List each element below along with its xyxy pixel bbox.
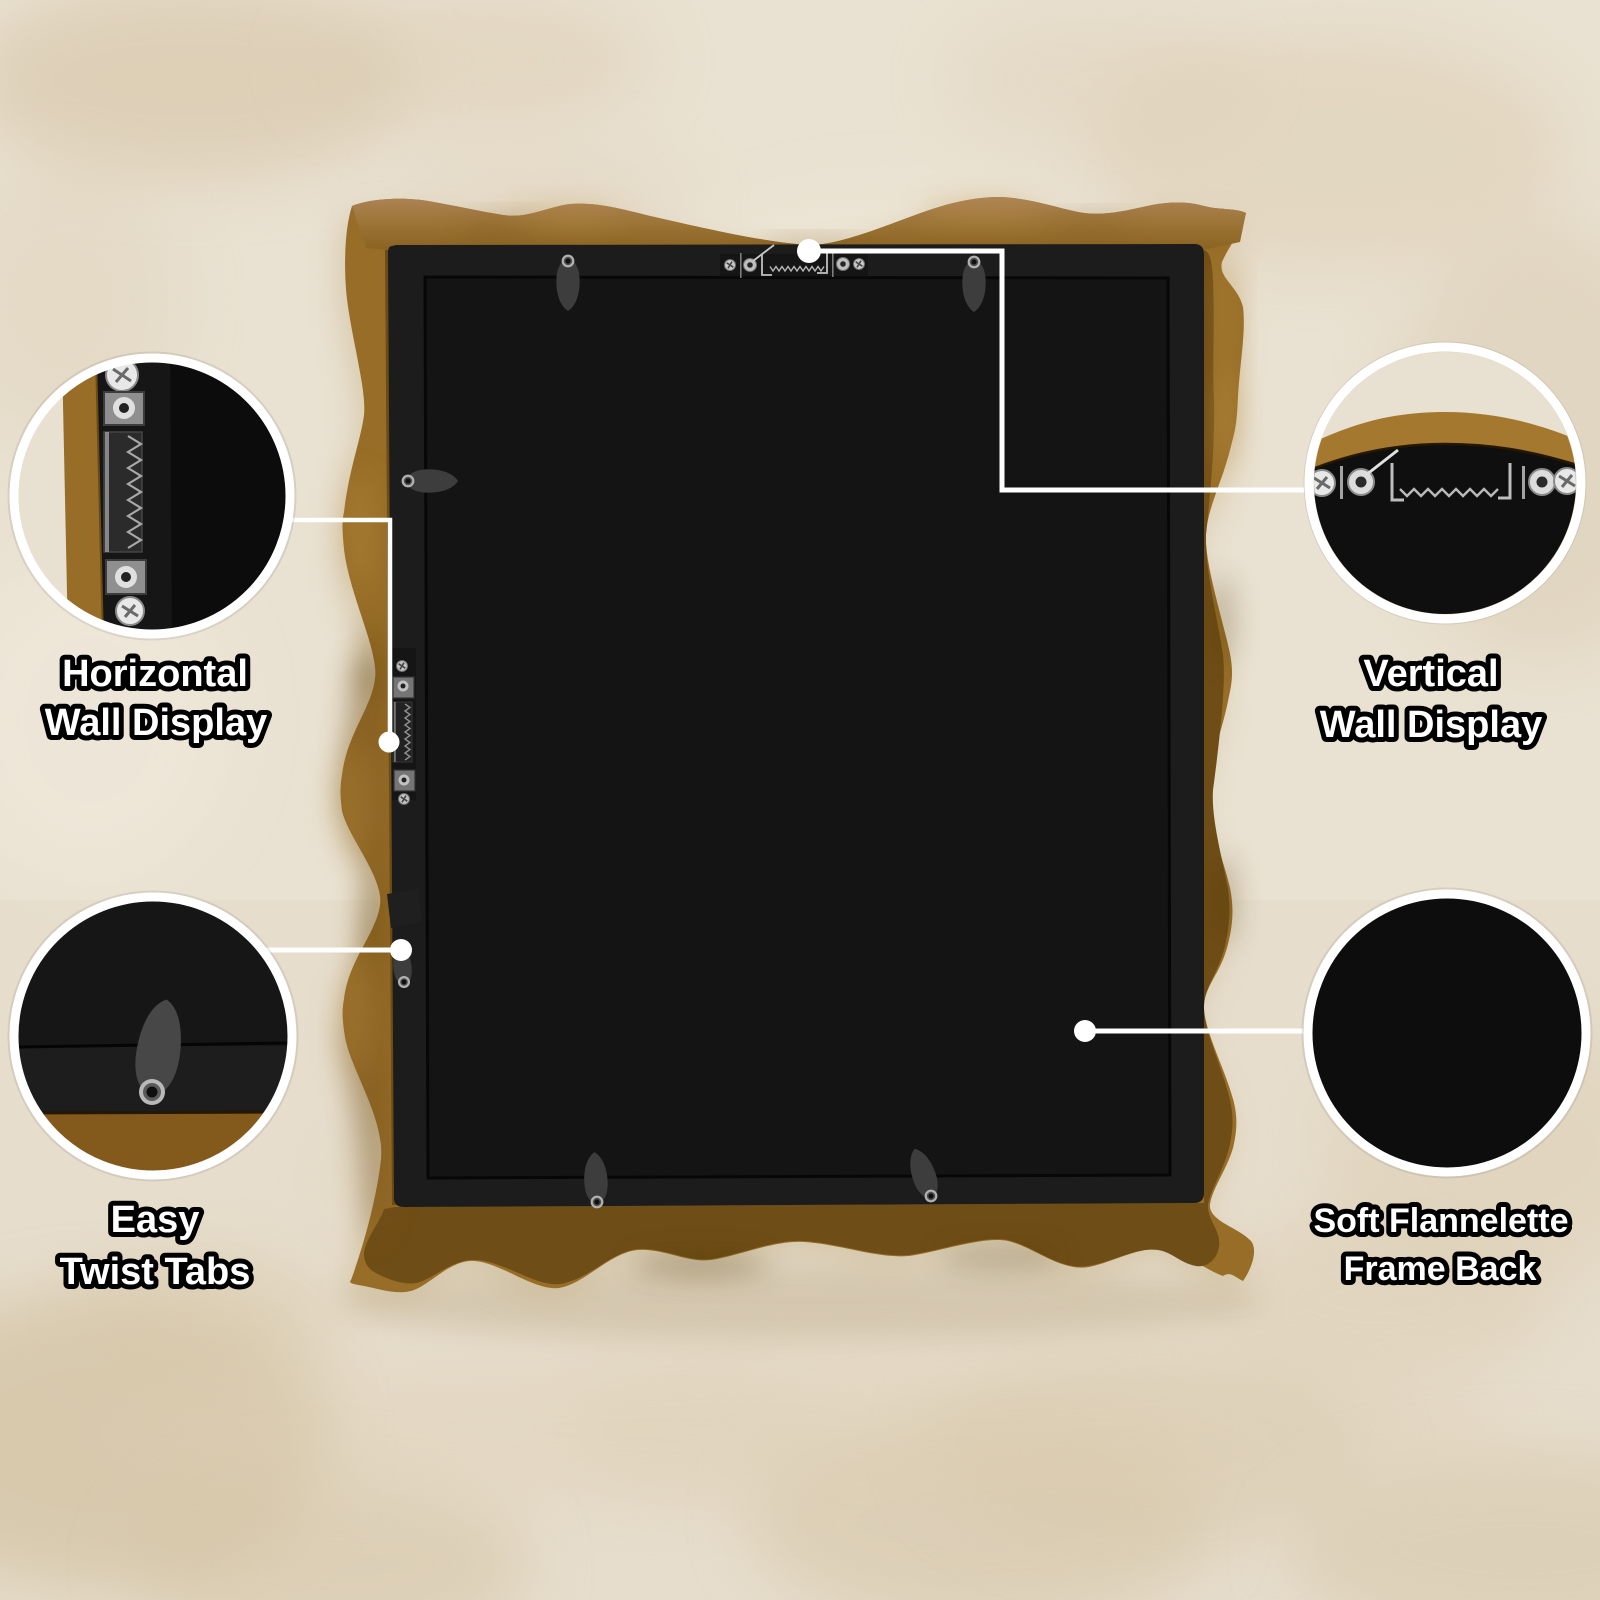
svg-text:Soft Flannelette: Soft Flannelette	[1313, 1202, 1568, 1240]
svg-text:Frame Back: Frame Back	[1344, 1250, 1537, 1288]
svg-text:Easy: Easy	[111, 1199, 200, 1241]
svg-text:Vertical: Vertical	[1363, 653, 1498, 695]
svg-text:Horizontal: Horizontal	[62, 653, 248, 695]
svg-text:Twist Tabs: Twist Tabs	[60, 1251, 251, 1293]
svg-text:Wall Display: Wall Display	[1320, 704, 1542, 746]
svg-text:Wall Display: Wall Display	[45, 702, 267, 744]
